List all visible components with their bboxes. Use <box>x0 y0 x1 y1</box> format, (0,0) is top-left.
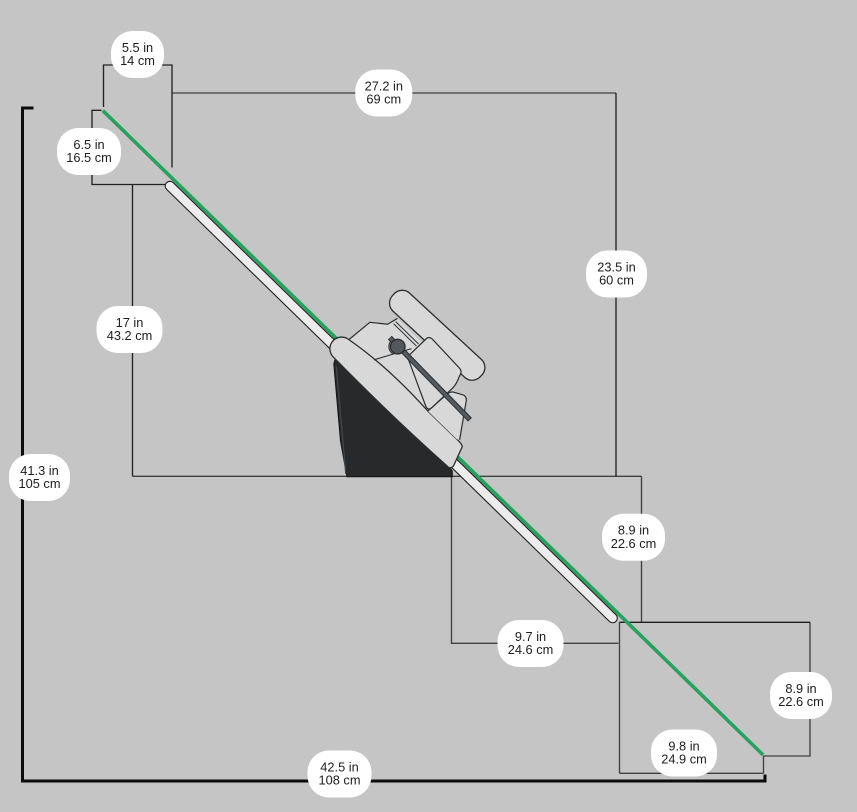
svg-text:105 cm: 105 cm <box>19 476 61 491</box>
svg-text:24.6 cm: 24.6 cm <box>508 642 554 657</box>
svg-text:43.2 cm: 43.2 cm <box>107 328 153 343</box>
svg-text:24.9 cm: 24.9 cm <box>661 752 707 767</box>
svg-text:69 cm: 69 cm <box>366 92 401 107</box>
svg-text:22.6 cm: 22.6 cm <box>611 536 657 551</box>
svg-text:60 cm: 60 cm <box>599 273 634 288</box>
svg-text:108 cm: 108 cm <box>319 773 361 788</box>
svg-text:14 cm: 14 cm <box>120 53 155 68</box>
svg-text:16.5 cm: 16.5 cm <box>66 150 112 165</box>
svg-text:22.6 cm: 22.6 cm <box>778 694 824 709</box>
